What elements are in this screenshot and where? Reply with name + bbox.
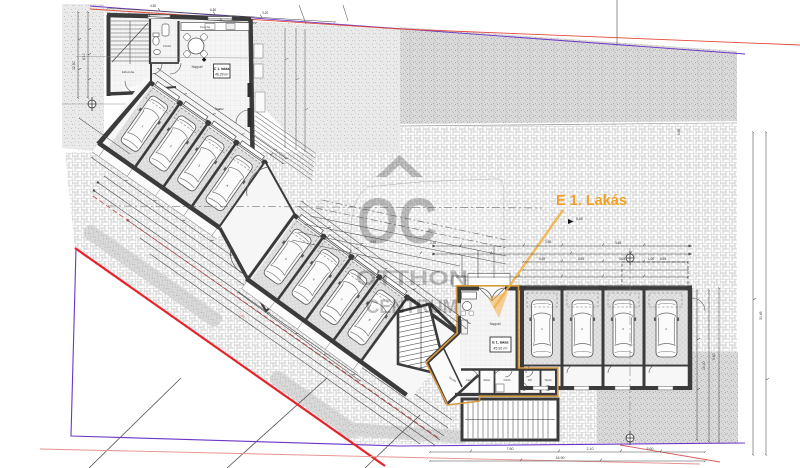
- svg-text:1.50: 1.50: [677, 129, 681, 135]
- svg-text:30.45: 30.45: [759, 311, 763, 320]
- svg-text:Nappali: Nappali: [192, 65, 203, 69]
- svg-text:2.10: 2.10: [430, 241, 436, 245]
- svg-text:WC: WC: [528, 378, 532, 382]
- svg-text:Tároló: Tároló: [544, 378, 552, 382]
- svg-text:45.92 m²: 45.92 m²: [493, 347, 508, 351]
- svg-text:Nappali: Nappali: [490, 322, 501, 326]
- svg-text:Konyha: Konyha: [200, 25, 211, 29]
- svg-text:5.60: 5.60: [712, 353, 716, 360]
- svg-text:3.65: 3.65: [619, 257, 625, 261]
- svg-text:E 1. Lakás: E 1. Lakás: [556, 193, 627, 209]
- svg-text:3.65: 3.65: [545, 240, 551, 244]
- svg-text:3.65: 3.65: [615, 241, 621, 245]
- svg-text:Előszoba: Előszoba: [122, 70, 135, 74]
- svg-text:10.00: 10.00: [702, 361, 706, 370]
- svg-text:6.80: 6.80: [210, 8, 216, 12]
- svg-text:3.65: 3.65: [539, 257, 545, 261]
- svg-text:6.10: 6.10: [82, 53, 86, 60]
- svg-text:0,00: 0,00: [576, 217, 583, 221]
- svg-text:1.00: 1.00: [648, 257, 654, 261]
- svg-text:C 1. lakás: C 1. lakás: [214, 67, 230, 71]
- svg-text:CENTRUM: CENTRUM: [366, 297, 458, 318]
- svg-text:3.65: 3.65: [578, 257, 584, 261]
- svg-text:Kamra: Kamra: [466, 378, 474, 382]
- svg-text:7.60: 7.60: [507, 447, 514, 451]
- svg-text:4.50: 4.50: [150, 4, 156, 8]
- svg-text:5.45: 5.45: [370, 240, 376, 244]
- svg-text:3.65: 3.65: [660, 257, 666, 261]
- svg-text:Fürdő: Fürdő: [163, 44, 171, 48]
- svg-text:3.20: 3.20: [262, 11, 268, 15]
- svg-text:Fürdő: Fürdő: [504, 378, 511, 382]
- svg-text:46.29 m²: 46.29 m²: [215, 73, 229, 77]
- svg-text:5.60: 5.60: [647, 447, 654, 451]
- svg-text:2.10: 2.10: [587, 447, 594, 451]
- svg-text:16.90: 16.90: [556, 456, 565, 460]
- svg-text:OC: OC: [357, 185, 437, 257]
- svg-text:12.50: 12.50: [72, 61, 76, 70]
- svg-text:OTTHON: OTTHON: [356, 267, 468, 290]
- svg-text:E 1. lakás: E 1. lakás: [492, 341, 508, 345]
- svg-text:Előtér: Előtér: [484, 378, 491, 382]
